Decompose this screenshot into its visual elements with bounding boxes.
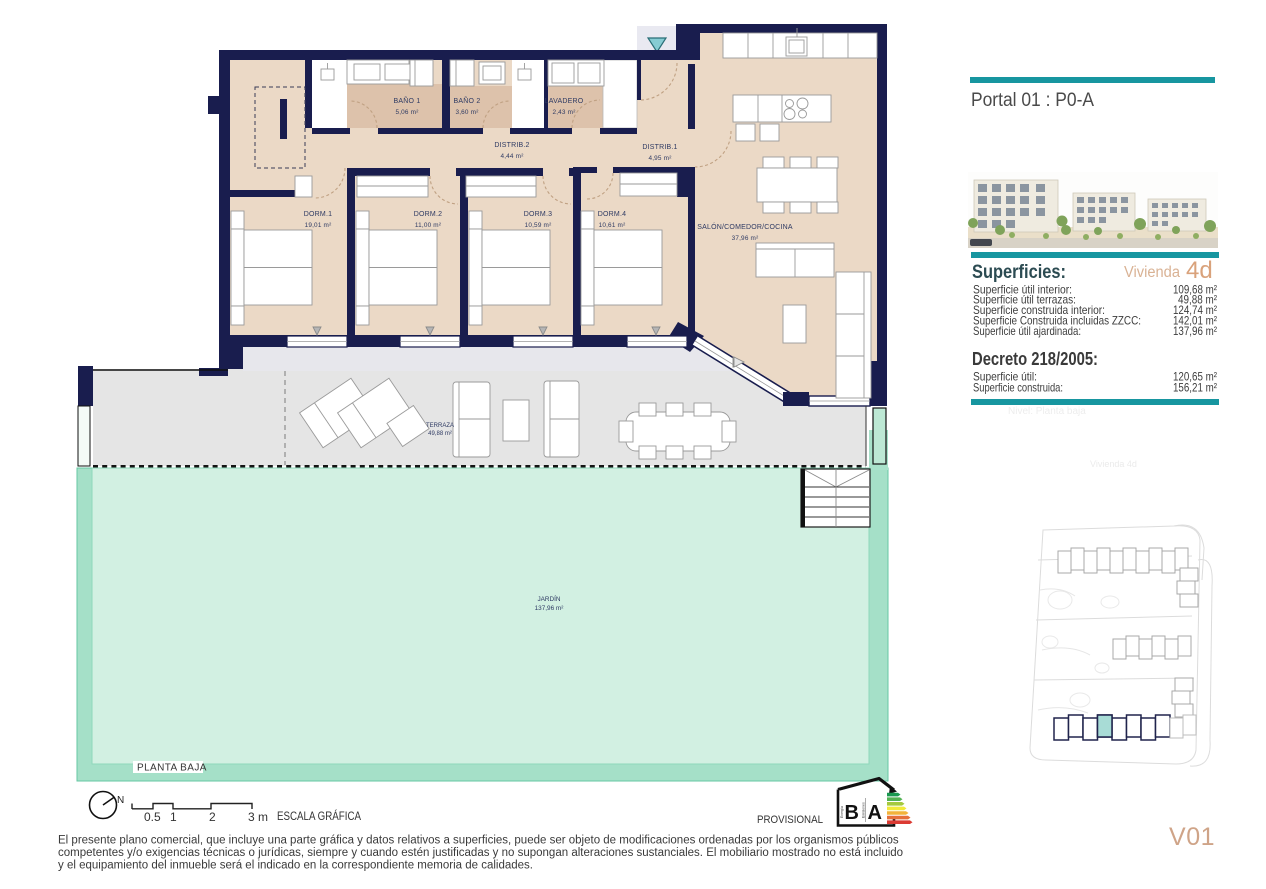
svg-text:DORM.4: DORM.4 — [598, 211, 626, 218]
svg-text:4,44 m²: 4,44 m² — [500, 153, 523, 160]
svg-text:PROVISIONAL: PROVISIONAL — [757, 814, 823, 826]
svg-text:LAVADERO: LAVADERO — [545, 98, 584, 105]
svg-text:PLANTA BAJA: PLANTA BAJA — [137, 763, 207, 774]
svg-text:10,59 m²: 10,59 m² — [525, 222, 552, 229]
svg-text:4,95 m²: 4,95 m² — [648, 155, 671, 162]
svg-text:DORM.3: DORM.3 — [524, 211, 552, 218]
svg-text:137,96 m²: 137,96 m² — [535, 605, 564, 612]
svg-text:2,43 m²: 2,43 m² — [552, 109, 575, 116]
svg-text:10,61 m²: 10,61 m² — [599, 222, 626, 229]
svg-text:0.5: 0.5 — [144, 810, 161, 824]
svg-text:Superficie útil ajardinada:: Superficie útil ajardinada: — [973, 324, 1081, 338]
svg-text:137,96 m²: 137,96 m² — [1173, 324, 1217, 338]
svg-text:Decreto 218/2005:: Decreto 218/2005: — [972, 349, 1098, 369]
svg-text:JARDÍN: JARDÍN — [537, 594, 560, 603]
svg-text:156,21 m²: 156,21 m² — [1173, 380, 1217, 394]
svg-text:DORM.1: DORM.1 — [304, 211, 332, 218]
svg-text:37,96 m²: 37,96 m² — [732, 235, 759, 242]
svg-text:1: 1 — [170, 810, 177, 824]
svg-text:El presente plano comercial, q: El presente plano comercial, que incluye… — [58, 835, 899, 847]
svg-text:BAÑO 1: BAÑO 1 — [394, 96, 421, 105]
svg-text:4d: 4d — [1186, 257, 1213, 284]
svg-text:V01: V01 — [1169, 823, 1215, 851]
svg-text:Vivienda 4d: Vivienda 4d — [1090, 459, 1137, 469]
svg-text:competentes y/o exigencias téc: competentes y/o exigencias técnicas o ju… — [58, 847, 903, 859]
svg-text:2: 2 — [209, 810, 216, 824]
svg-text:SALÓN/COMEDOR/COCINA: SALÓN/COMEDOR/COCINA — [697, 222, 793, 231]
svg-text:Emisiones: Emisiones — [862, 802, 866, 818]
svg-text:Nivel: Planta baja: Nivel: Planta baja — [1008, 406, 1086, 417]
svg-text:ESCALA GRÁFICA: ESCALA GRÁFICA — [277, 808, 361, 823]
svg-text:Superficies:: Superficies: — [972, 261, 1066, 283]
svg-text:5,06 m²: 5,06 m² — [395, 109, 418, 116]
svg-text:N: N — [117, 795, 124, 806]
svg-text:TERRAZA: TERRAZA — [426, 423, 454, 429]
svg-text:B: B — [845, 802, 859, 824]
svg-text:3 m: 3 m — [248, 810, 268, 824]
svg-text:Portal 01 : P0-A: Portal 01 : P0-A — [971, 90, 1094, 111]
svg-text:y el equipamiento del inmueble: y el equipamiento del inmueble será el i… — [58, 860, 533, 872]
svg-text:BAÑO 2: BAÑO 2 — [454, 96, 481, 105]
svg-text:Superficie construida:: Superficie construida: — [973, 380, 1063, 394]
svg-text:Vivienda: Vivienda — [1124, 264, 1180, 281]
svg-text:A: A — [868, 802, 882, 824]
svg-text:DISTRIB.1: DISTRIB.1 — [642, 144, 677, 151]
svg-text:11,00 m²: 11,00 m² — [415, 222, 441, 229]
svg-text:49,88 m²: 49,88 m² — [428, 431, 452, 437]
svg-text:3,60 m²: 3,60 m² — [455, 109, 478, 116]
svg-text:Energía: Energía — [840, 806, 844, 818]
svg-text:DORM.2: DORM.2 — [414, 211, 442, 218]
svg-text:19,01 m²: 19,01 m² — [305, 222, 332, 229]
svg-text:DISTRIB.2: DISTRIB.2 — [494, 142, 529, 149]
